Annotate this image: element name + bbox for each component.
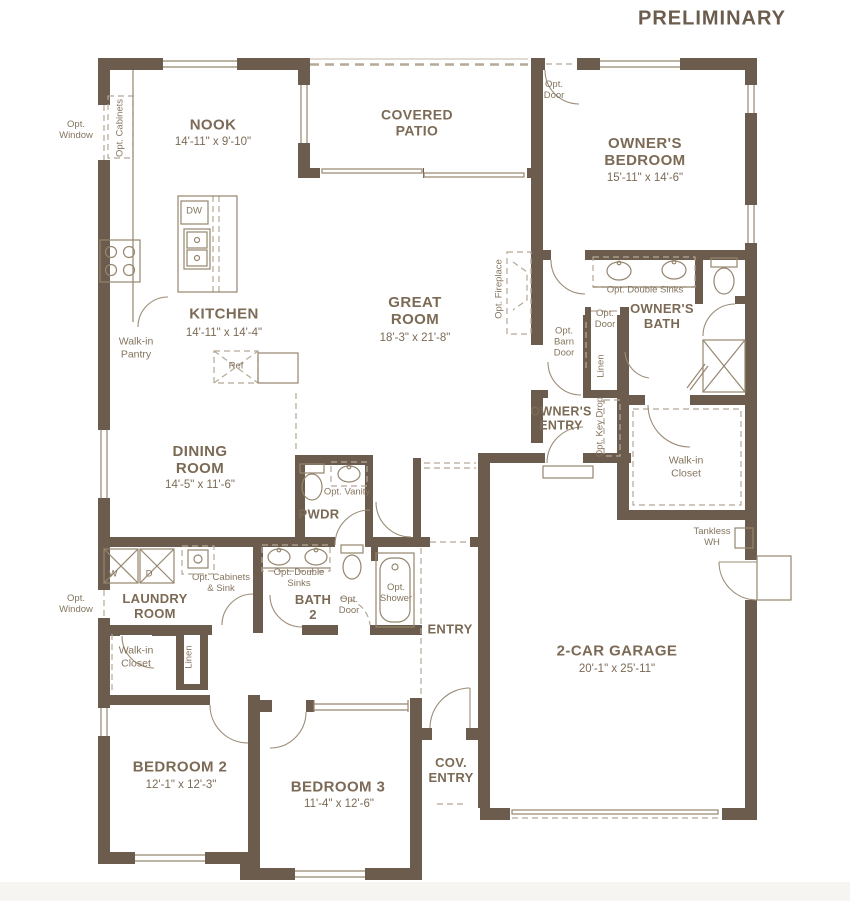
garage-step — [543, 466, 593, 478]
bedroom3-closet-sliders — [314, 700, 408, 712]
page-bottom-strip — [0, 882, 850, 901]
room-dims-bedroom2: 12'-1" x 12'-3" — [146, 779, 217, 791]
pantry-label: Walk-in Pantry — [119, 335, 154, 360]
room-name-nook: NOOK — [190, 118, 237, 135]
room-dims-nook: 14'-11" x 9'-10" — [175, 136, 251, 148]
room-dims-bedroom3: 11'-4" x 12'-6" — [304, 798, 374, 810]
dishwasher-label: DW — [186, 207, 202, 218]
washer-label: W — [109, 570, 118, 581]
opt-key-drop-label: Opt. Key Drop — [596, 397, 607, 457]
owners-bath-sinks-icon — [593, 260, 695, 287]
owners-closet-label: Walk-in Closet — [669, 454, 704, 479]
floorplan-page: PRELIMINARY Opt. Window Opt. Cabinets NO… — [0, 0, 850, 901]
dryer-label: D — [146, 570, 153, 581]
room-name-owners-bedroom: OWNER'S BEDROOM — [604, 136, 685, 170]
opt-door-owners-bath-label: Opt. Door — [595, 309, 616, 331]
opt-barn-door-label: Opt. Barn Door — [554, 327, 575, 360]
preliminary-watermark: PRELIMINARY — [638, 8, 786, 31]
room-name-garage: 2-CAR GARAGE — [557, 644, 678, 661]
room-dims-dining: 14'-5" x 11'-6" — [165, 479, 235, 491]
room-name-laundry: LAUNDRY ROOM — [122, 592, 187, 622]
bath2-sinks-icon — [262, 548, 330, 568]
room-dims-kitchen: 14'-11" x 14'-4" — [186, 327, 262, 339]
kitchen-cabinet — [258, 353, 298, 383]
room-dims-owners-bedroom: 15'-11" x 14'-6" — [607, 172, 683, 184]
linen-hall-label: Linen — [185, 645, 196, 668]
owners-shower-icon — [687, 340, 745, 392]
opt-double-sinks-owners-label: Opt. Double Sinks — [607, 286, 684, 297]
opt-shower-label: Opt. Shower — [380, 583, 412, 605]
laundry-sink-icon — [188, 550, 208, 568]
bath2-toilet-icon — [341, 545, 363, 579]
kitchen-sink-icon — [184, 229, 210, 269]
opt-window-label-laundry: Opt. Window — [59, 594, 93, 616]
pwdr-sink-icon — [338, 465, 360, 482]
room-name-pwdr: PWDR — [299, 508, 340, 523]
room-dims-great-room: 18'-3" x 21'-8" — [380, 332, 451, 344]
room-name-great-room: GREAT ROOM — [388, 295, 441, 329]
hall-closet-label: Walk-in Closet — [119, 644, 154, 669]
room-name-owners-bath: OWNER'S BATH — [630, 302, 694, 332]
room-name-cov-entry: COV. ENTRY — [428, 756, 473, 786]
opt-cabinets-sink-label: Opt. Cabinets & Sink — [192, 573, 250, 595]
owners-toilet-icon — [711, 258, 737, 294]
opt-door-label-bedroom: Opt. Door — [544, 80, 565, 102]
room-name-bath2: BATH 2 — [295, 593, 331, 623]
room-name-kitchen: KITCHEN — [189, 307, 258, 324]
room-name-entry: ENTRY — [427, 623, 472, 638]
room-name-bedroom2: BEDROOM 2 — [133, 760, 227, 777]
room-name-owners-entry: OWNER'S ENTRY — [530, 405, 591, 434]
opt-double-sinks-bath2-label: Opt. Double Sinks — [274, 568, 325, 590]
tankless-wh-label: Tankless WH — [694, 527, 731, 549]
opt-vanity-label: Opt. Vanity — [324, 488, 370, 499]
room-name-dining: DINING ROOM — [173, 444, 228, 478]
opt-window-label-nook: Opt. Window — [59, 120, 93, 142]
opt-fireplace-outline — [507, 252, 531, 334]
exterior-stoop — [757, 556, 791, 600]
fixtures — [100, 70, 791, 712]
refrigerator-label: Ref — [229, 362, 244, 373]
opt-cabinets-label: Opt. Cabinets — [116, 99, 127, 157]
room-name-bedroom3: BEDROOM 3 — [291, 780, 385, 797]
room-dims-garage: 20'-1" x 25'-11" — [579, 663, 655, 675]
opt-door-bath2-label: Opt. Door — [339, 595, 360, 617]
linen-owners-label: Linen — [597, 354, 608, 377]
room-name-covered-patio: COVERED PATIO — [381, 107, 453, 138]
opt-fireplace-label: Opt. Fireplace — [495, 259, 506, 319]
